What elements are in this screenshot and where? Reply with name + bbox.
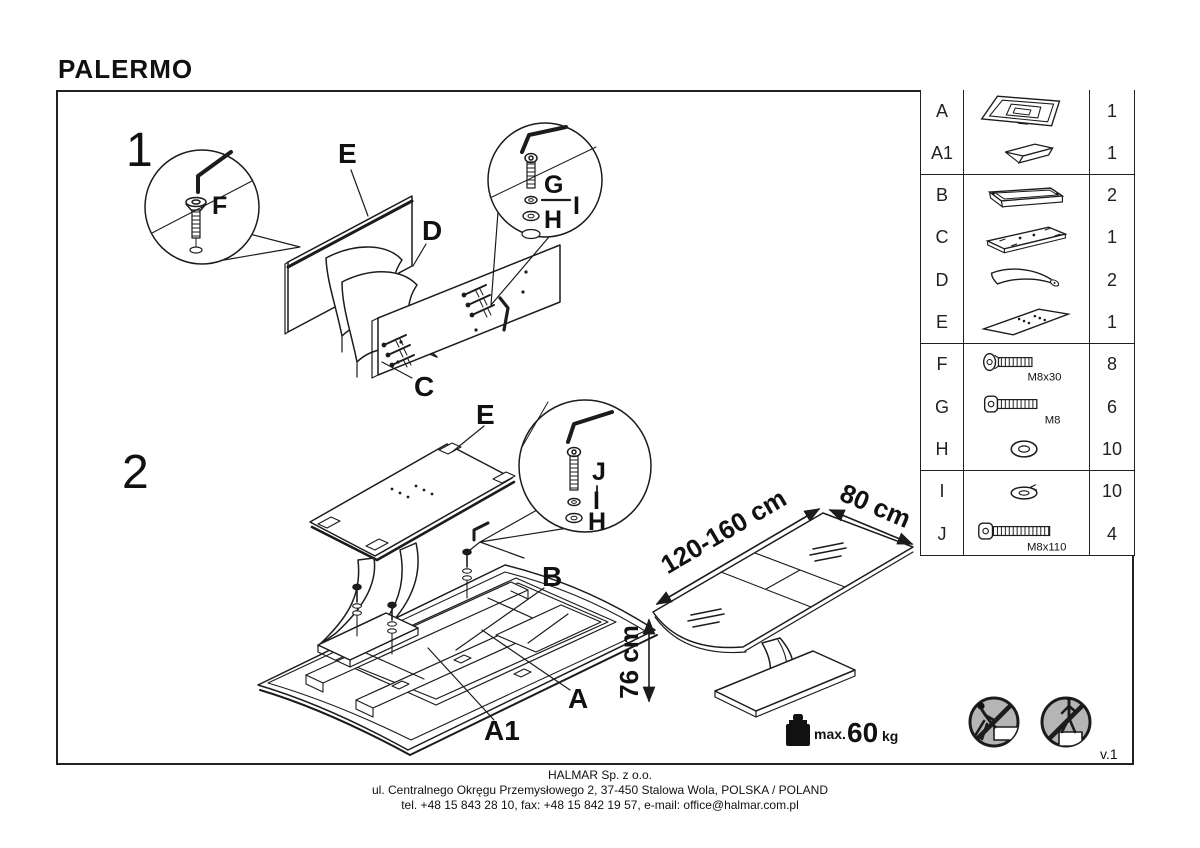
part-c-icon xyxy=(964,217,1090,260)
table-row: F M8x30 8 xyxy=(921,344,1134,386)
part-id: G xyxy=(921,386,964,429)
label-d: D xyxy=(422,215,442,246)
label-f: F xyxy=(212,192,227,220)
magnifier-circle-f: F xyxy=(145,150,300,264)
part-d-icon xyxy=(964,259,1090,302)
assembly-instruction-page: PALERMO 1 xyxy=(0,0,1200,848)
spring-washer-hardware xyxy=(568,499,580,506)
footer-company: HALMAR Sp. z o.o. xyxy=(0,768,1200,783)
part-b-icon xyxy=(964,175,1090,218)
table-row: B 2 xyxy=(921,175,1134,217)
part-id: H xyxy=(921,428,964,471)
part-qty: 8 xyxy=(1090,344,1134,387)
part-j-icon: M8x110 xyxy=(964,513,1090,555)
part-id: A1 xyxy=(921,132,964,175)
label-e2: E xyxy=(476,399,495,430)
part-qty: 1 xyxy=(1090,217,1134,260)
table-row: E 1 xyxy=(921,301,1134,343)
footer-contact: tel. +48 15 843 28 10, fax: +48 15 842 1… xyxy=(0,798,1200,813)
part-i-icon xyxy=(964,471,1090,514)
step1-diagram: 1 xyxy=(126,123,602,402)
part-id: F xyxy=(921,344,964,387)
part-f-icon: M8x30 xyxy=(964,344,1090,387)
label-h2: H xyxy=(588,508,606,536)
part-qty: 10 xyxy=(1090,428,1134,471)
flat-washer-hardware xyxy=(566,514,582,523)
no-climbing-icon xyxy=(970,698,1019,746)
weight-icon xyxy=(786,714,810,746)
table-row: D 2 xyxy=(921,259,1134,301)
part-id: E xyxy=(921,301,964,344)
allen-key-icon xyxy=(474,523,488,540)
footer-address: ul. Centralnego Okręgu Przemysłowego 2, … xyxy=(0,783,1200,798)
part-qty: 1 xyxy=(1090,90,1134,133)
part-spec: M8x110 xyxy=(1027,542,1066,554)
label-a1: A1 xyxy=(484,715,520,746)
label-a: A xyxy=(568,683,588,714)
label-c: C xyxy=(414,371,434,402)
step2-number: 2 xyxy=(122,446,149,499)
label-h: H xyxy=(544,206,562,234)
step2-diagram: 2 xyxy=(122,399,657,755)
part-qty: 6 xyxy=(1090,386,1134,429)
label-e: E xyxy=(338,138,357,169)
screw-g-hardware xyxy=(525,154,537,189)
part-qty: 1 xyxy=(1090,132,1134,175)
table-row: C 1 xyxy=(921,217,1134,259)
plate-e-part xyxy=(310,443,515,560)
dimension-drawing: 120-160 cm 80 cm 76 cm xyxy=(614,478,915,717)
part-qty: 1 xyxy=(1090,301,1134,344)
part-g-icon: M8 xyxy=(964,386,1090,429)
part-id: B xyxy=(921,175,964,218)
load-prefix: max. xyxy=(814,726,846,742)
table-row: H 10 xyxy=(921,428,1134,470)
part-qty: 2 xyxy=(1090,259,1134,302)
part-id: J xyxy=(921,513,964,555)
label-g: G xyxy=(544,171,563,199)
load-limit: max. 60 kg xyxy=(786,714,898,748)
label-j: J xyxy=(592,458,606,486)
label-b: B xyxy=(542,561,562,592)
table-row: A 1 xyxy=(921,90,1134,132)
bolt-j-hardware xyxy=(568,448,581,491)
label-i: I xyxy=(573,192,580,220)
height-dimension: 76 cm xyxy=(614,625,644,699)
part-qty: 4 xyxy=(1090,513,1134,555)
part-qty: 2 xyxy=(1090,175,1134,218)
part-id: D xyxy=(921,259,964,302)
table-row: J M8x110 4 xyxy=(921,513,1134,555)
part-id: I xyxy=(921,471,964,514)
part-id: A xyxy=(921,90,964,133)
spring-washer-hardware xyxy=(525,197,537,204)
flat-washer-hardware xyxy=(523,212,539,221)
part-qty: 10 xyxy=(1090,471,1134,514)
part-id: C xyxy=(921,217,964,260)
table-row: G M8 6 xyxy=(921,386,1134,428)
part-spec: M8 xyxy=(1045,415,1061,427)
table-row: A1 1 xyxy=(921,132,1134,174)
part-spec: M8x30 xyxy=(1028,372,1062,384)
part-h-icon xyxy=(964,428,1090,471)
version-label: v.1 xyxy=(1100,746,1118,762)
load-unit: kg xyxy=(882,728,898,744)
table-row: I 10 xyxy=(921,471,1134,513)
page-title: PALERMO xyxy=(58,54,193,85)
no-standing-icon xyxy=(1042,693,1090,746)
footer: HALMAR Sp. z o.o. ul. Centralnego Okręgu… xyxy=(0,768,1200,813)
step1-number: 1 xyxy=(126,124,153,177)
parts-table: A 1 A1 1 xyxy=(920,90,1135,556)
load-value: 60 xyxy=(847,717,878,748)
part-e-icon xyxy=(964,301,1090,344)
part-a-icon xyxy=(964,90,1090,133)
part-a1-icon xyxy=(964,132,1090,175)
